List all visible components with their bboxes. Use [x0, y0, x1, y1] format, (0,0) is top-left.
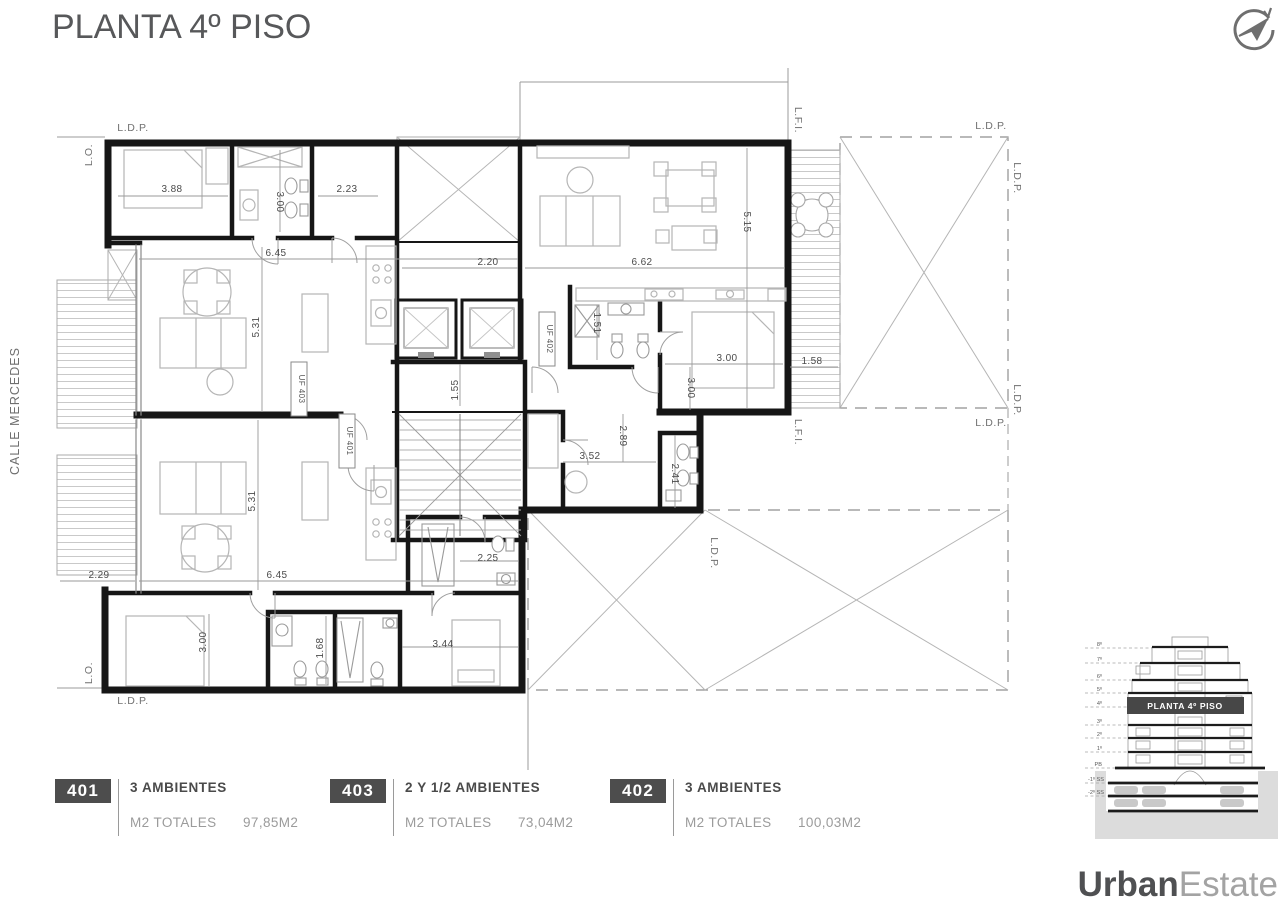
boundary-label: L.O. [83, 662, 95, 684]
area-label: M2 TOTALES [130, 815, 243, 830]
dim-label: 2.89 [617, 425, 628, 446]
current-floor-label: PLANTA 4º PISO [1147, 701, 1223, 711]
dim-label: 3.00 [716, 353, 737, 364]
unit-type: 2 Y 1/2 AMBIENTES [405, 780, 573, 795]
floor-label: 1º [1097, 745, 1102, 752]
dim-label: 1.55 [450, 379, 461, 400]
boundary-label: L.D.P. [117, 122, 148, 134]
brand-light: Estate [1179, 865, 1278, 904]
unit-badge: 402 [610, 779, 666, 803]
boundary-label: L.O. [83, 144, 95, 166]
dim-label: 3.52 [579, 451, 600, 462]
dim-label: 1.51 [591, 312, 602, 333]
area-label: M2 TOTALES [405, 815, 518, 830]
unit-label: UF 403 [297, 375, 306, 404]
unit-label: UF 402 [545, 325, 554, 354]
dim-label: 5.15 [741, 211, 752, 232]
unit-badge: 401 [55, 779, 111, 803]
brand-logo: UrbanEstate [1078, 866, 1278, 905]
boundary-label: L.D.P. [117, 695, 148, 707]
dim-label: 3.00 [274, 191, 285, 212]
floor-label: 5º [1097, 686, 1102, 693]
unit-badge: 403 [330, 779, 386, 803]
dim-label: 2.20 [477, 257, 498, 268]
boundary-label: L.D.P. [1011, 384, 1023, 415]
area-value: 97,85M2 [243, 815, 298, 830]
deck-table [791, 193, 833, 237]
boundary-label: L.D.P. [708, 537, 720, 568]
dim-label: 3.88 [161, 184, 182, 195]
brand-bold: Urban [1078, 865, 1179, 904]
dim-label: 1.58 [801, 356, 822, 367]
floor-label: 7º [1097, 656, 1102, 663]
boundary-label: L.D.P. [975, 120, 1006, 132]
dim-label: 5.31 [247, 490, 258, 511]
boundary-labels: L.D.P. L.O. L.F.I. L.D.P. L.D.P. L.D.P. … [83, 107, 1023, 707]
dim-label: 6.62 [631, 257, 652, 268]
floor-label: -2º SS [1088, 789, 1104, 796]
unit-label: UF 401 [345, 427, 354, 456]
boundary-label: L.F.I. [792, 419, 804, 445]
dim-label: 2.23 [336, 184, 357, 195]
boundary-label: L.F.I. [792, 107, 804, 133]
dim-label: 3.00 [685, 377, 696, 398]
elevators [396, 300, 522, 358]
floor-label: -1º SS [1088, 776, 1104, 783]
floor-label: PB [1095, 762, 1103, 768]
boundary-label: L.D.P. [1011, 162, 1023, 193]
boundary-label: L.D.P. [975, 417, 1006, 429]
unit-type: 3 AMBIENTES [130, 780, 298, 795]
area-value: 73,04M2 [518, 815, 573, 830]
walls [105, 143, 788, 690]
dim-label: 2.29 [88, 570, 109, 581]
dim-label: 3.44 [432, 639, 453, 650]
floor-plan-page: PLANTA 4º PISO CALLE MERCEDES [0, 0, 1280, 905]
dim-label: 6.45 [265, 248, 286, 259]
dim-label: 1.68 [315, 637, 326, 658]
floor-label: 3º [1097, 718, 1102, 725]
area-value: 100,03M2 [798, 815, 861, 830]
dim-label: 2.41 [669, 463, 680, 484]
dim-label: 3.00 [198, 631, 209, 652]
property-lines [57, 68, 1008, 770]
legend-item-403: 403 2 Y 1/2 AMBIENTES M2 TOTALES 73,04M2 [330, 779, 573, 836]
floor-label: 4º [1097, 700, 1102, 707]
dim-label: 2.25 [477, 553, 498, 564]
area-label: M2 TOTALES [685, 815, 798, 830]
floor-label: 8º [1097, 641, 1102, 648]
stairs [399, 414, 521, 536]
dim-label: 5.31 [251, 316, 262, 337]
legend-item-402: 402 3 AMBIENTES M2 TOTALES 100,03M2 [610, 779, 861, 836]
dim-label: 6.45 [266, 570, 287, 581]
dimension-labels: 3.88 3.00 2.23 6.45 2.20 6.62 5.15 1.55 … [88, 184, 822, 659]
floor-label: 6º [1097, 673, 1102, 680]
legend-item-401: 401 3 AMBIENTES M2 TOTALES 97,85M2 [55, 779, 298, 836]
floor-label: 2º [1097, 731, 1102, 738]
unit-type: 3 AMBIENTES [685, 780, 861, 795]
building-section: 8º 7º 6º 5º 4º 3º 2º 1º PB -1º SS -2º SS… [1080, 633, 1280, 845]
unit-tags: UF 403 UF 401 UF 402 [291, 312, 555, 468]
